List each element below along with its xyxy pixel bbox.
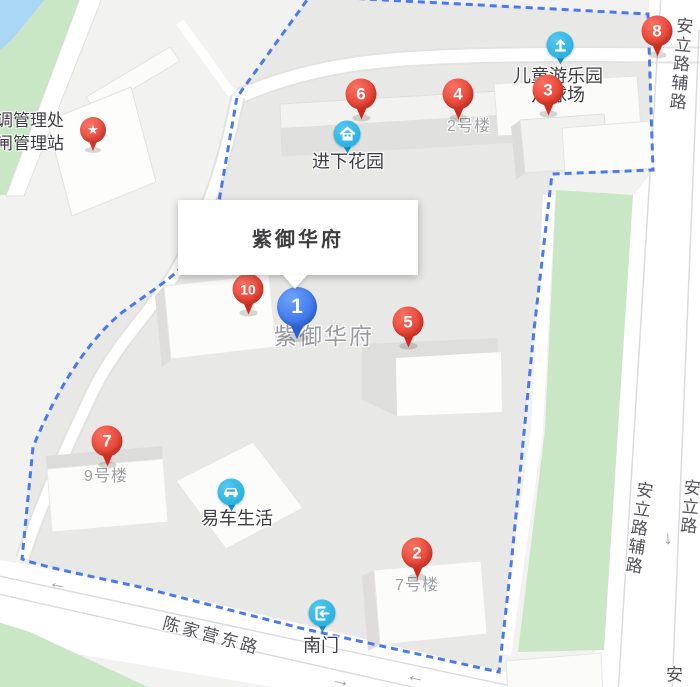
marker-balloon: 2 xyxy=(402,538,433,569)
marker-number: 3 xyxy=(543,80,552,100)
marker-balloon: 4 xyxy=(443,79,474,110)
marker-balloon: 3 xyxy=(533,75,564,106)
info-window-title: 紫御华府 xyxy=(252,223,344,252)
playground-icon xyxy=(547,32,574,59)
poi-label-line: 进下花园 xyxy=(312,153,384,172)
road-label: 安 xyxy=(666,661,686,686)
map-viewport[interactable]: 1234567810★儿童游乐园足球场进下花园易车生活南门2号楼9号楼7号楼紫御… xyxy=(0,0,700,687)
marker-number: 2 xyxy=(412,543,421,563)
car-icon xyxy=(218,479,245,506)
marker-balloon: 8 xyxy=(642,16,673,47)
map-marker-6[interactable]: 6 xyxy=(346,79,377,110)
map-marker-1[interactable]: 1 xyxy=(277,287,317,327)
poi-label-line: 易车生活 xyxy=(201,510,273,529)
marker-number: 5 xyxy=(403,312,412,332)
map-marker-8[interactable]: 8 xyxy=(642,16,673,47)
marker-number: 10 xyxy=(240,281,256,297)
marker-balloon: 6 xyxy=(346,79,377,110)
marker-number: 8 xyxy=(652,21,661,41)
marker-balloon: 10 xyxy=(233,274,264,305)
poi-label: 进下花园 xyxy=(312,153,384,172)
map-marker-7[interactable]: 7 xyxy=(92,426,123,457)
marker-balloon: 5 xyxy=(393,307,424,338)
map-marker-5[interactable]: 5 xyxy=(393,307,424,338)
poi-label: 易车生活 xyxy=(201,510,273,529)
place-label: 闸管理站 xyxy=(0,129,64,154)
place-label: 调管理处 xyxy=(0,106,64,131)
road-direction-arrow-icon: → xyxy=(329,668,352,687)
star-icon: ★ xyxy=(87,122,99,138)
marker-balloon: 7 xyxy=(92,426,123,457)
road-connector xyxy=(180,22,232,94)
marker-balloon: ★ xyxy=(80,117,106,143)
road-direction-arrow-icon: ← xyxy=(404,664,427,687)
map-marker-2[interactable]: 2 xyxy=(402,538,433,569)
poi-car[interactable] xyxy=(218,479,245,506)
poi-house[interactable] xyxy=(334,121,361,148)
poi-playground[interactable] xyxy=(547,32,574,59)
map-marker-10[interactable]: 10 xyxy=(233,274,264,305)
marker-balloon: 1 xyxy=(277,287,317,327)
marker-number: 7 xyxy=(102,431,111,451)
marker-number: 1 xyxy=(291,295,303,319)
poi-label-line: 南门 xyxy=(303,637,339,656)
marker-number: 6 xyxy=(356,84,365,104)
map-marker-4[interactable]: 4 xyxy=(443,79,474,110)
marker-number: 4 xyxy=(453,84,462,104)
gate-icon xyxy=(309,600,336,627)
map-marker-star[interactable]: ★ xyxy=(80,117,106,143)
map-marker-3[interactable]: 3 xyxy=(533,75,564,106)
poi-label: 南门 xyxy=(303,637,339,656)
house-icon xyxy=(334,121,361,148)
poi-gate[interactable] xyxy=(309,600,336,627)
info-window[interactable]: 紫御华府 xyxy=(178,200,418,275)
road-direction-arrow-icon: ↓ xyxy=(663,528,674,550)
